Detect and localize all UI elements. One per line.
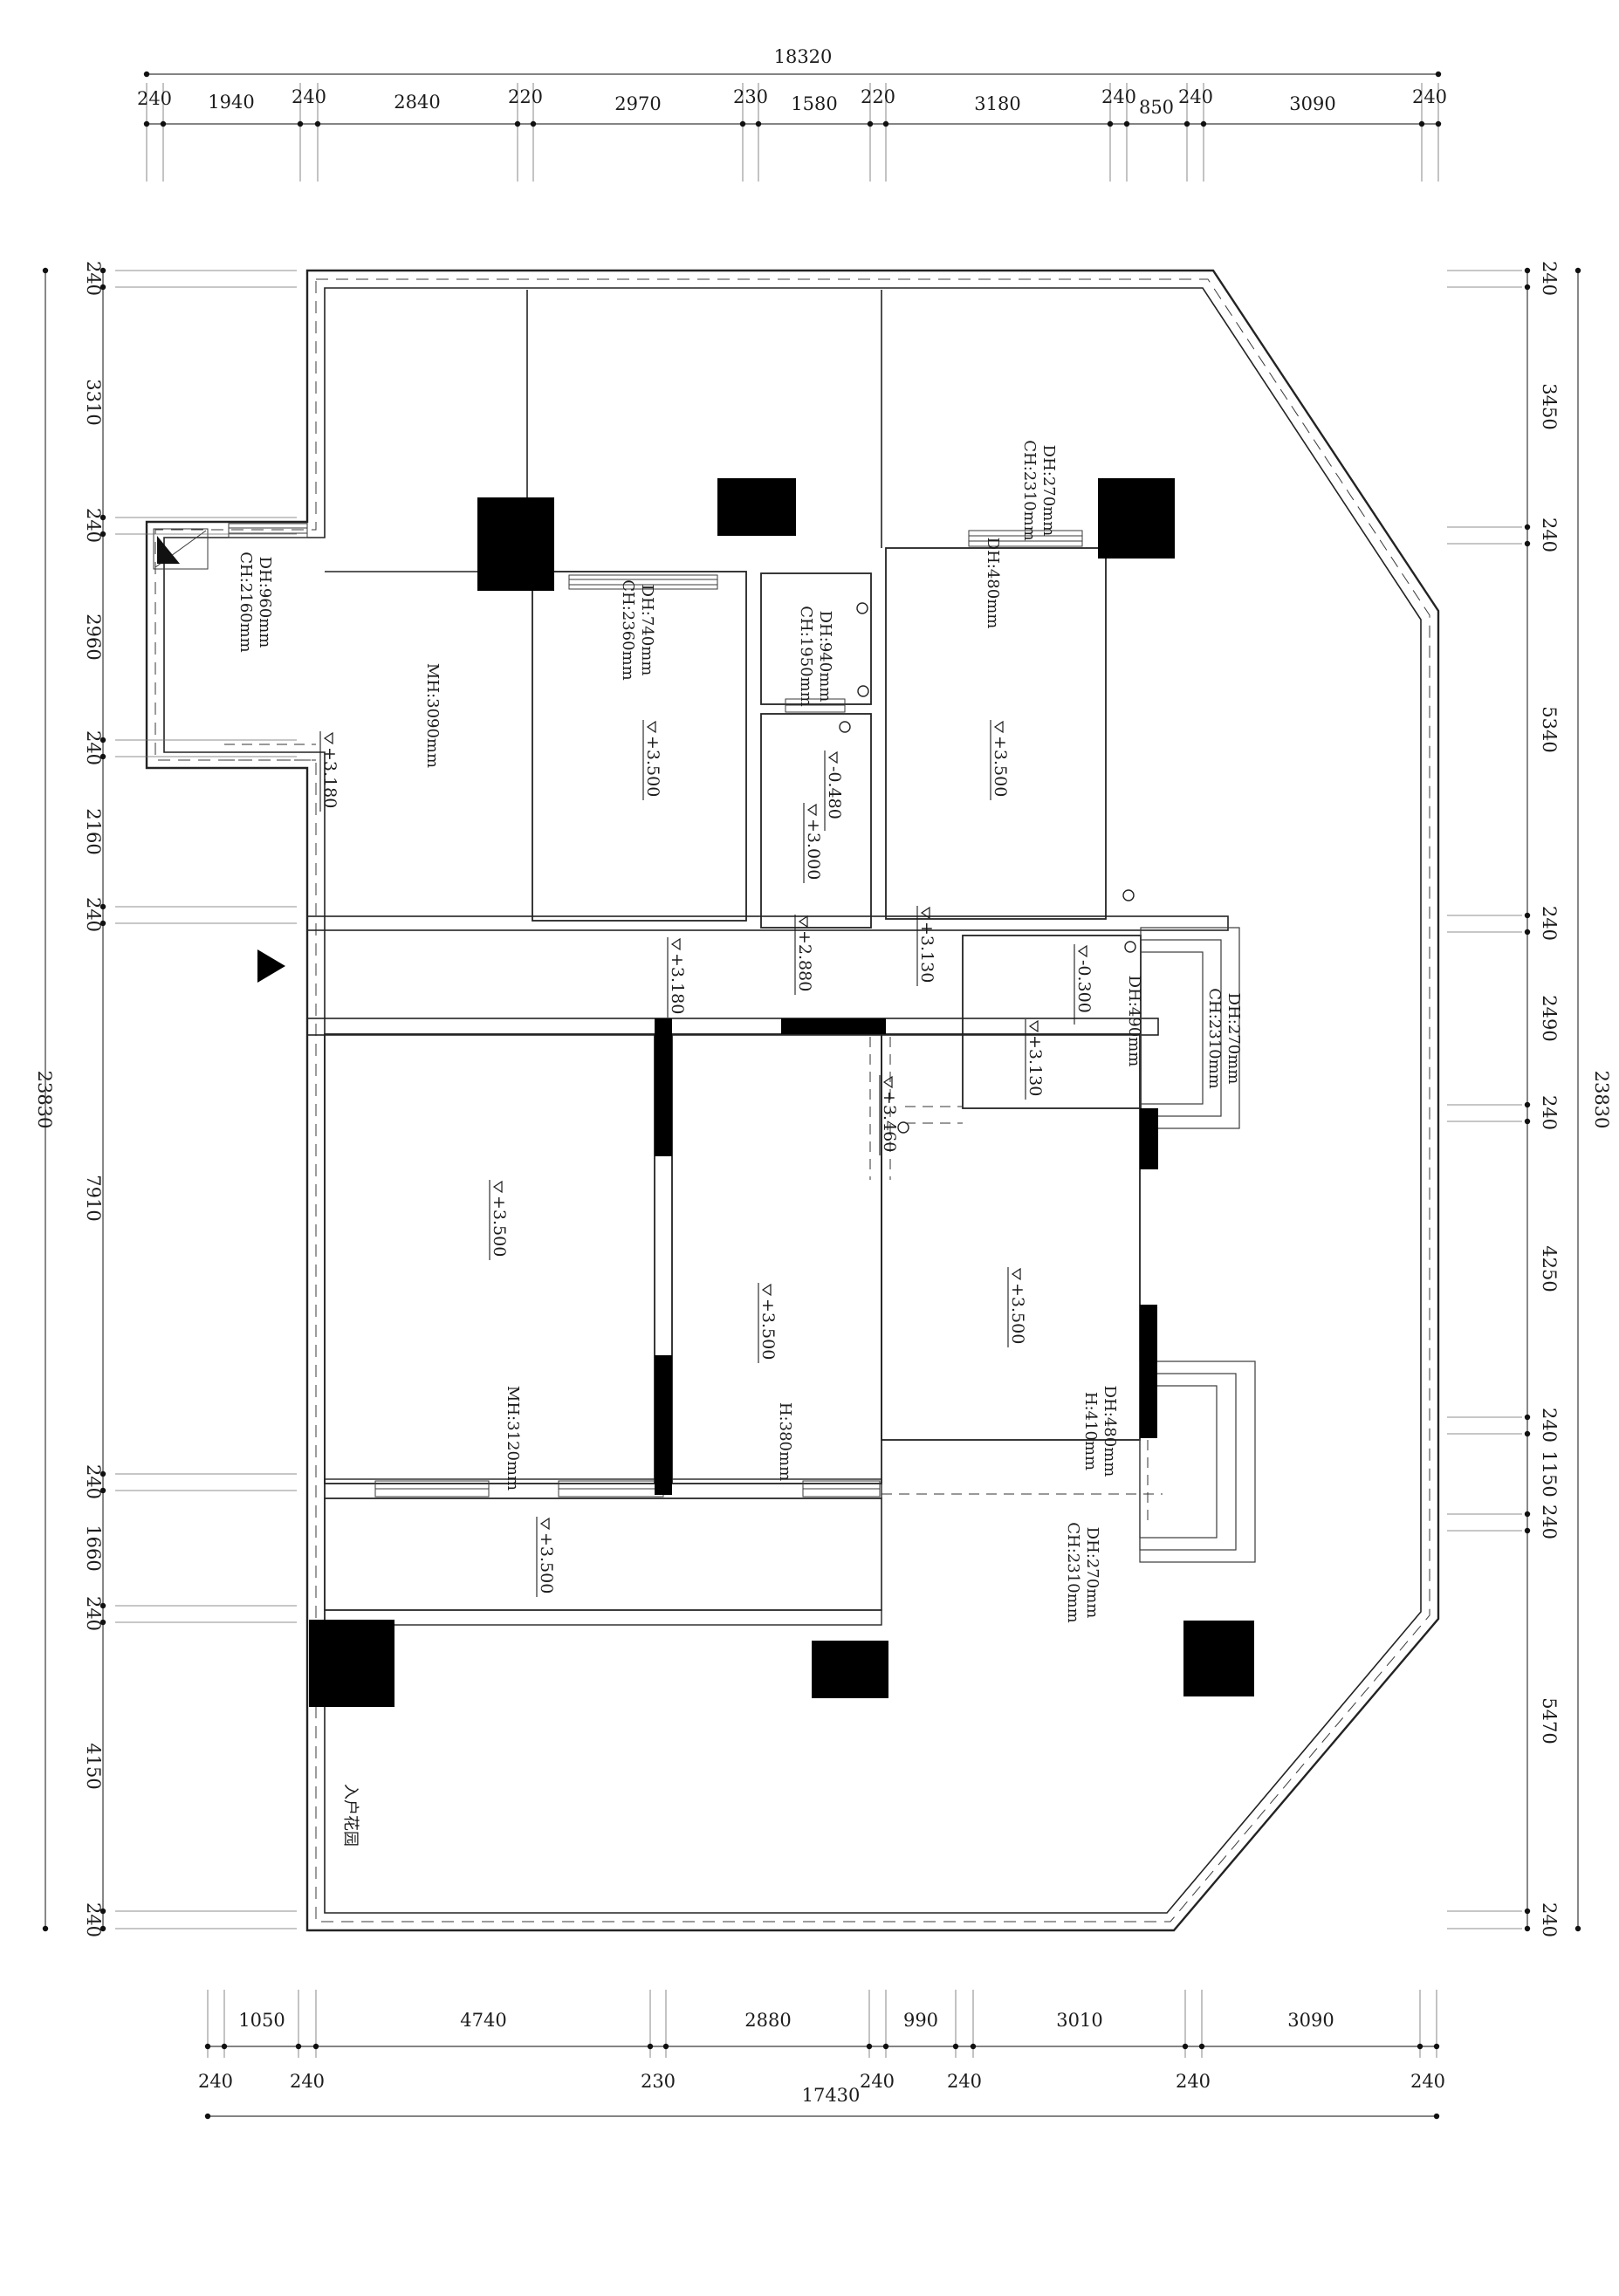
dim-label: 1660	[83, 1525, 104, 1571]
dim-label: CH:2310mm	[1064, 1522, 1082, 1622]
dim-label: MH:3090mm	[423, 663, 442, 768]
dim-label: DH:270mm	[1225, 993, 1243, 1085]
dim-label: 3010	[1056, 2010, 1102, 2031]
level-value: +2.880	[795, 930, 814, 991]
dimension-chain-top: 2401940240284022029702301580220318024085…	[137, 46, 1447, 182]
door-hinge-circle	[858, 686, 868, 696]
dim-label: 240	[83, 730, 104, 765]
dim-label: 990	[903, 2010, 938, 2031]
dim-label: CH:2360mm	[619, 579, 637, 680]
level-value: +3.000	[804, 819, 823, 880]
level-mark: +3.500	[758, 1283, 778, 1363]
dim-label: DH:960mm	[256, 557, 274, 648]
level-value: +3.180	[668, 953, 687, 1014]
floor-plan-canvas: 2401940240284022029702301580220318024085…	[0, 0, 1619, 2296]
door-hinge-circle	[1123, 890, 1134, 901]
dim-label: 240	[1101, 86, 1136, 107]
dim-label: 5470	[1539, 1697, 1560, 1744]
level-value: +3.500	[643, 736, 662, 797]
dim-label: 240	[83, 1464, 104, 1499]
dim-label: 240	[1539, 1902, 1560, 1937]
dim-label: 入户花园	[341, 1784, 360, 1847]
dim-label: 240	[83, 897, 104, 932]
level-mark: +3.130	[1026, 1019, 1045, 1100]
floor-plan-page: 2401940240284022029702301580220318024085…	[0, 0, 1619, 2296]
dim-label: 220	[508, 86, 543, 107]
level-mark: +3.500	[1008, 1267, 1027, 1347]
level-value: +3.130	[1026, 1035, 1045, 1096]
column	[477, 497, 554, 591]
level-value: +3.500	[490, 1196, 509, 1257]
level-value: +3.500	[537, 1532, 556, 1593]
dim-label: 240	[83, 1596, 104, 1631]
level-value: +3.500	[991, 736, 1010, 797]
level-marks: +3.180+3.500-0.480+3.000+3.500+2.880+3.1…	[320, 720, 1094, 1597]
level-value: +3.130	[917, 922, 936, 983]
level-mark: +3.500	[643, 720, 662, 800]
dim-label: CH:2310mm	[1020, 440, 1039, 540]
level-mark: +3.500	[991, 720, 1010, 800]
door-hinge-circle	[1125, 942, 1135, 952]
section-marker-icon	[257, 949, 285, 983]
dim-label: 3180	[974, 93, 1020, 114]
level-value: +3.500	[1008, 1283, 1027, 1344]
dim-label: H:380mm	[776, 1402, 794, 1481]
dim-label: DH:940mm	[816, 611, 834, 703]
dim-label: DH:490mm	[1125, 976, 1143, 1067]
dim-label: 240	[1178, 86, 1213, 107]
column	[655, 1018, 672, 1156]
dim-label: 3090	[1287, 2010, 1334, 2031]
dim-label: 2970	[614, 93, 661, 114]
dim-label: 240	[83, 508, 104, 543]
dim-label: 240	[1539, 1095, 1560, 1130]
dim-label: 240	[83, 1902, 104, 1937]
column	[781, 1018, 886, 1034]
level-value: -0.300	[1074, 960, 1094, 1013]
dim-label: CH:2160mm	[237, 552, 255, 652]
dimension-chain-left: 2403310240296024021602407910240166024041…	[34, 261, 297, 1937]
dim-label: 2960	[83, 613, 104, 660]
dim-label: CH:2310mm	[1205, 988, 1224, 1088]
dim-label: 1580	[791, 93, 837, 114]
level-mark: +3.460	[880, 1075, 899, 1155]
column	[1140, 1108, 1158, 1169]
dim-label: 2160	[83, 808, 104, 854]
dim-label: DH:270mm	[1083, 1527, 1101, 1619]
dim-label: 240	[290, 2071, 325, 2092]
dim-label: 7910	[83, 1175, 104, 1221]
dim-label: 240	[1412, 86, 1447, 107]
level-mark: +3.000	[804, 803, 823, 883]
door-hinge-circle	[857, 603, 868, 613]
dim-label: 240	[83, 261, 104, 296]
dim-label: 240	[1176, 2071, 1211, 2092]
window	[154, 529, 208, 569]
dim-label: 240	[1539, 517, 1560, 552]
dim-label: 3310	[83, 379, 104, 425]
dim-label: 240	[860, 2071, 895, 2092]
level-value: +3.460	[880, 1091, 899, 1152]
dim-label: 240	[1539, 1408, 1560, 1443]
dim-label: 3090	[1289, 93, 1335, 114]
column	[812, 1641, 888, 1698]
dim-label: 2880	[744, 2010, 791, 2031]
door-hinge-circle	[840, 722, 850, 732]
dim-label: DH:270mm	[1039, 445, 1058, 537]
dim-label: 240	[292, 86, 326, 107]
dim-label: 4150	[83, 1743, 104, 1789]
dim-label: 1050	[238, 2010, 285, 2031]
dim-label: 18320	[774, 46, 833, 67]
level-mark: -0.300	[1074, 944, 1094, 1025]
dim-label: 850	[1139, 97, 1174, 118]
level-value: -0.480	[825, 766, 844, 819]
column	[1098, 478, 1175, 559]
dim-label: 240	[1410, 2071, 1445, 2092]
dim-label: 230	[733, 86, 768, 107]
level-mark: +3.500	[490, 1180, 509, 1260]
dim-label: 240	[1539, 1504, 1560, 1539]
dimension-chain-right: 2403450240534024024902404250240115024054…	[1447, 261, 1612, 1937]
columns	[257, 478, 1254, 1707]
dim-label: 240	[1539, 261, 1560, 296]
dim-label: 5340	[1539, 706, 1560, 752]
level-mark: +3.180	[668, 937, 687, 1018]
dim-label: 3450	[1539, 383, 1560, 429]
level-mark: +3.130	[917, 906, 936, 986]
dim-label: DH:740mm	[638, 585, 656, 676]
dim-label: DH:480mm	[1101, 1386, 1119, 1477]
level-mark: -0.480	[825, 750, 844, 831]
dim-label: 240	[198, 2071, 233, 2092]
column	[1140, 1305, 1157, 1438]
dim-label: 4740	[460, 2010, 506, 2031]
dim-label: 2490	[1539, 995, 1560, 1041]
dim-label: DH:480mm	[984, 538, 1002, 629]
dim-label: MH:3120mm	[504, 1386, 522, 1491]
window	[229, 524, 307, 538]
dim-label: 2840	[394, 92, 440, 113]
column	[655, 1355, 672, 1495]
dim-label: 1940	[208, 92, 254, 113]
dim-label: 240	[137, 88, 172, 109]
door-circles	[840, 603, 1135, 1133]
dim-label: 23830	[1591, 1071, 1612, 1129]
dim-label: 1150	[1539, 1450, 1560, 1497]
level-mark: +3.500	[537, 1517, 556, 1597]
window-symbols	[154, 524, 1082, 1497]
level-value: +3.180	[320, 747, 340, 808]
dim-label: 240	[947, 2071, 982, 2092]
column	[309, 1620, 394, 1707]
dashed-lines	[224, 744, 1163, 1523]
level-mark: +2.880	[795, 915, 814, 995]
dimension-chain-bottom: 1050474028809903010309024024023024024024…	[198, 1990, 1445, 2119]
dim-label: 17430	[802, 2085, 861, 2106]
dim-label: H:410mm	[1081, 1392, 1100, 1470]
dim-label: 230	[641, 2071, 676, 2092]
dim-label: 220	[861, 86, 895, 107]
level-value: +3.500	[758, 1299, 778, 1360]
dim-label: 23830	[34, 1071, 55, 1129]
dim-label: CH:1950mm	[797, 606, 815, 706]
dim-label: 4250	[1539, 1245, 1560, 1292]
level-mark: +3.180	[320, 731, 340, 812]
column	[1183, 1621, 1254, 1696]
dim-label: 240	[1539, 906, 1560, 941]
column	[717, 478, 796, 536]
